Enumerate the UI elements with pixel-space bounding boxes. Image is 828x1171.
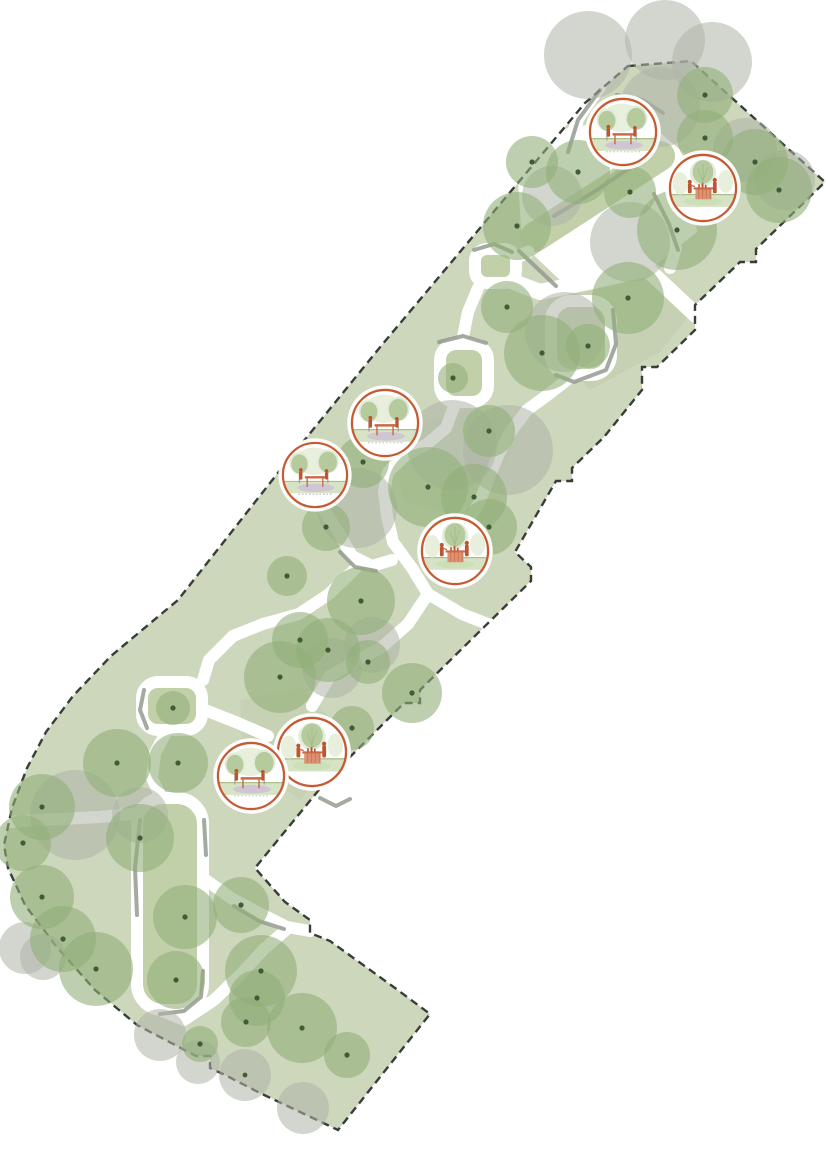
customer-person-body: [688, 183, 692, 193]
tree-center-dot: [575, 169, 580, 174]
vignette-backdrop-foliage: [470, 533, 485, 556]
tree-center-dot: [297, 637, 302, 642]
vendor-person-body: [322, 745, 326, 757]
tree-center-dot: [284, 573, 289, 578]
tree-center-dot: [299, 1025, 304, 1030]
tree-center-dot: [365, 659, 370, 664]
tree-center-dot: [539, 350, 544, 355]
existing-tree-canopy: [277, 1082, 329, 1134]
tree-center-dot: [254, 995, 259, 1000]
tree-center-dot: [243, 1019, 248, 1024]
vendor-person-body: [713, 182, 717, 194]
tree-center-dot: [425, 484, 430, 489]
amenity-callout: [347, 385, 423, 461]
amenity-callout: [278, 438, 351, 511]
tree-center-dot: [325, 647, 330, 652]
tree-center-dot: [585, 343, 590, 348]
tree-center-dot: [514, 223, 519, 228]
tree-center-dot: [243, 1073, 248, 1078]
tree-center-dot: [20, 840, 25, 845]
kiosk-counter: [304, 752, 321, 764]
vignette-tree: [627, 108, 646, 130]
tree-center-dot: [93, 966, 98, 971]
tree-center-dot: [39, 804, 44, 809]
tree-center-dot: [170, 705, 175, 710]
amenity-callout: [585, 94, 661, 170]
standing-person-head: [633, 126, 637, 130]
seated-person-body: [369, 419, 372, 428]
existing-tree-canopy: [544, 11, 632, 99]
vignette-ground-ellipse: [233, 785, 271, 794]
tree-center-dot: [702, 92, 707, 97]
customer-person-head: [440, 543, 444, 547]
standing-person-head: [325, 469, 328, 472]
tree-center-dot: [674, 227, 679, 232]
tree-center-dot: [137, 835, 142, 840]
tree-center-dot: [752, 159, 757, 164]
tree-center-dot: [529, 159, 534, 164]
tree-center-dot: [358, 598, 363, 603]
tree-center-dot: [114, 760, 119, 765]
standing-person-head: [261, 770, 265, 774]
tree-center-dot: [277, 674, 282, 679]
customer-person-head: [688, 180, 692, 184]
vignette-backdrop-foliage: [673, 172, 688, 195]
seated-person-head: [606, 125, 610, 129]
vignette-backdrop-foliage: [425, 535, 440, 558]
seated-person-body: [235, 772, 238, 781]
tree-center-dot: [486, 428, 491, 433]
seated-person-head: [368, 416, 372, 420]
standing-person-body: [325, 472, 328, 479]
site-plan-page: [0, 0, 828, 1171]
vendor-person-body: [465, 545, 469, 557]
tree-center-dot: [450, 375, 455, 380]
customer-person-head: [296, 744, 300, 748]
tree-center-dot: [409, 690, 414, 695]
tree-center-dot: [627, 189, 632, 194]
tree-center-dot: [344, 1052, 349, 1057]
customer-person-body: [440, 546, 444, 556]
tree-center-dot: [349, 725, 354, 730]
tree-center-dot: [504, 304, 509, 309]
standing-person-head: [395, 417, 399, 421]
vignette-ground-ellipse: [367, 432, 405, 441]
vignette-tree: [255, 752, 274, 774]
vendor-person-head: [713, 178, 717, 182]
seated-person-head: [299, 468, 303, 472]
tree-center-dot: [486, 524, 491, 529]
vendor-person-head: [322, 742, 326, 746]
tree-center-dot: [258, 968, 263, 973]
tree-center-dot: [182, 914, 187, 919]
path-edge-shading: [204, 820, 206, 855]
vignette-backdrop-foliage: [718, 170, 733, 193]
kiosk-counter: [447, 551, 463, 562]
seated-person-body: [299, 471, 302, 479]
vignette-backdrop-foliage: [328, 734, 344, 757]
tree-center-dot: [173, 977, 178, 982]
tree-center-dot: [323, 524, 328, 529]
vignette-ground-ellipse: [298, 484, 335, 492]
tree-center-dot: [197, 1041, 202, 1046]
vignette-ground-ellipse: [605, 141, 643, 150]
tree-center-dot: [625, 295, 630, 300]
tree-center-dot: [471, 494, 476, 499]
tree-center-dot: [175, 760, 180, 765]
tree-center-dot: [39, 894, 44, 899]
amenity-callout: [417, 513, 493, 589]
tree-center-dot: [360, 459, 365, 464]
standing-person-body: [395, 420, 398, 428]
amenity-callout: [213, 738, 289, 814]
seated-person-body: [607, 128, 610, 137]
tree-center-dot: [60, 936, 65, 941]
seated-person-head: [234, 769, 238, 773]
vignette-tree: [319, 452, 337, 473]
tree-center-dot: [776, 187, 781, 192]
tree-center-dot: [702, 135, 707, 140]
vignette-tree: [389, 399, 408, 421]
standing-person-body: [633, 129, 636, 137]
vignette-backdrop-foliage: [281, 735, 297, 758]
customer-person-body: [296, 747, 300, 757]
amenity-callout: [665, 150, 741, 226]
tree-center-dot: [238, 902, 243, 907]
vendor-person-head: [465, 541, 469, 545]
standing-person-body: [261, 773, 264, 781]
site-plan-svg: [0, 0, 828, 1171]
kiosk-counter: [695, 188, 711, 199]
